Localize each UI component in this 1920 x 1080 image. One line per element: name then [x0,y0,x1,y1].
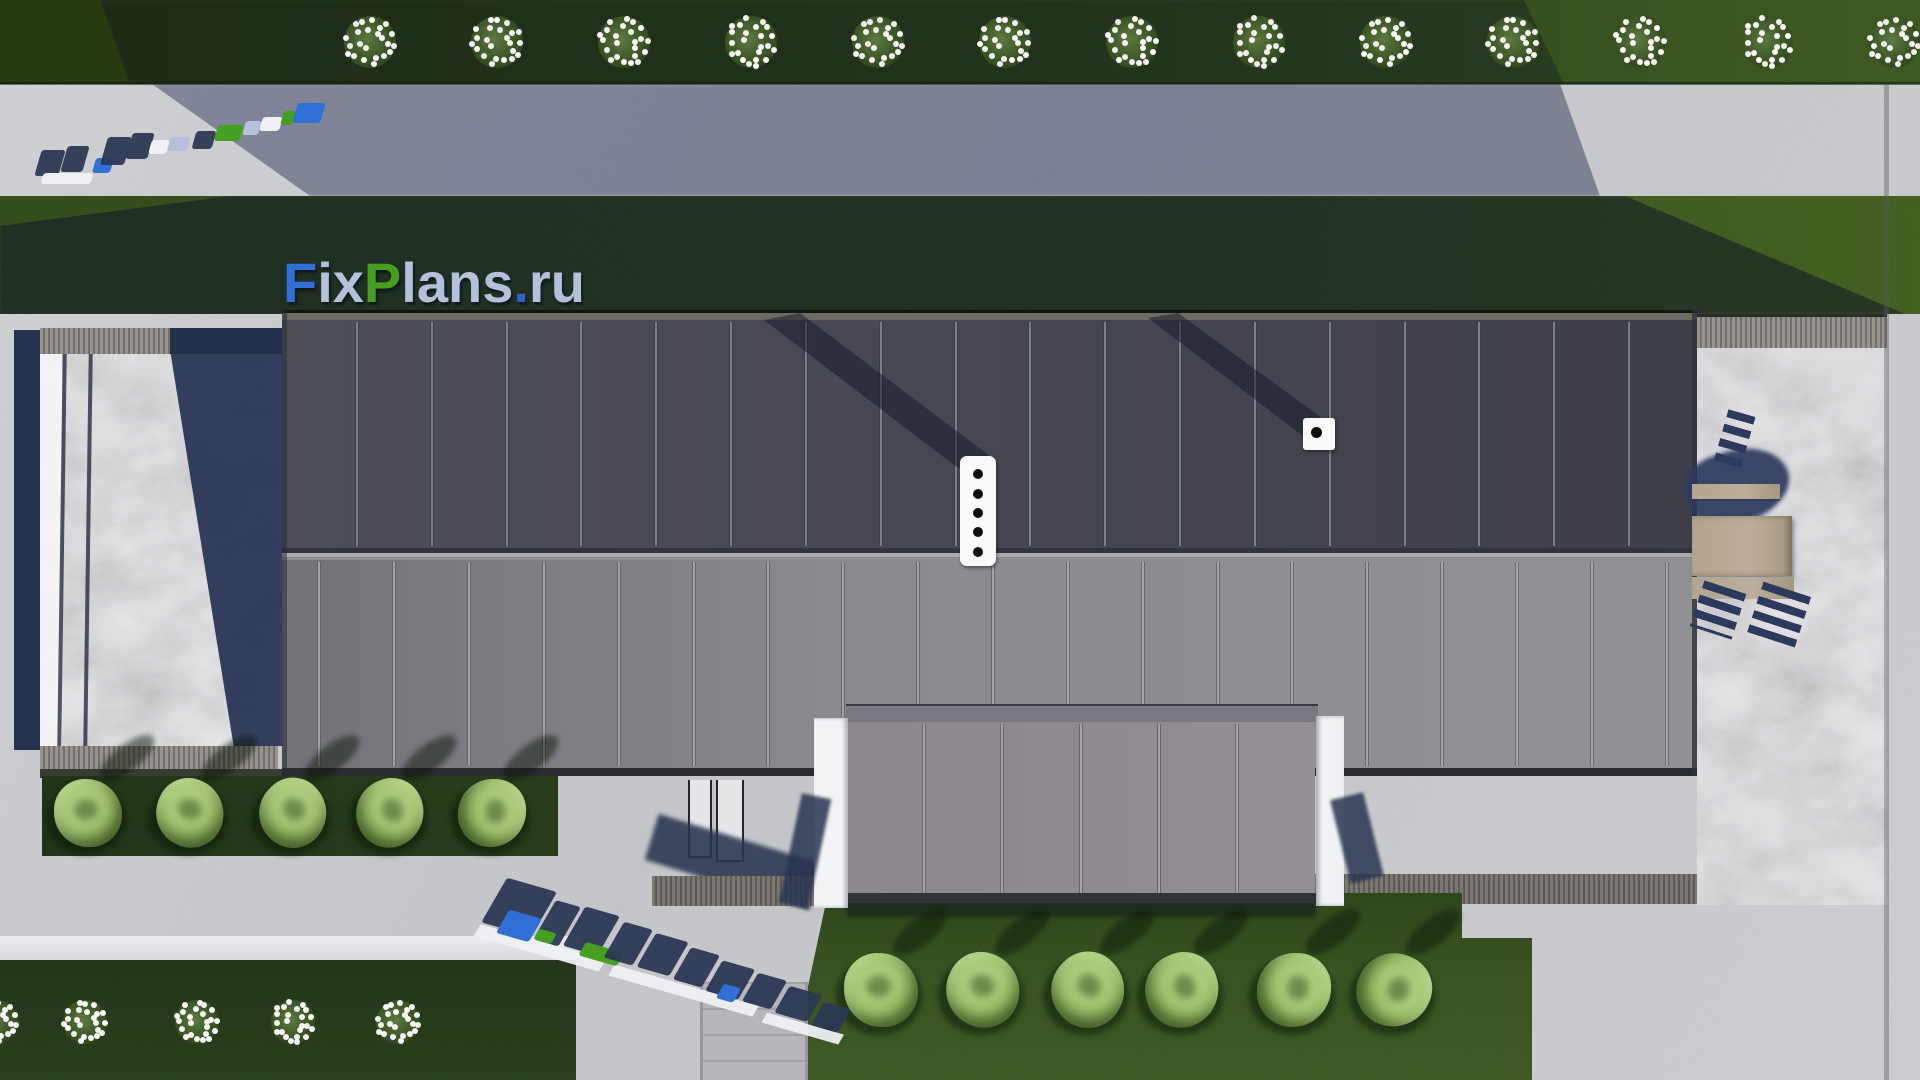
roof-seam [692,562,696,766]
tree-inner-shade [1286,975,1309,1001]
far-right-seam [1884,84,1889,1080]
wing-roof [846,722,1315,897]
tree-inner-shade [966,971,998,1001]
walkway-band-edge [0,82,1920,85]
chimney-vent-hole [973,547,983,557]
chimney-vent-hole [973,489,983,499]
bush-flowers [748,39,754,45]
bush-foliage [0,1000,18,1044]
bush-flowers [395,1019,401,1025]
watermark-fixplans: FixPlans.ru [283,250,683,310]
watermark-ground-block [214,125,245,141]
roof-seam [1590,562,1594,766]
tree-inner-shade [379,795,406,824]
bench-top [1692,484,1780,499]
flower-bush [1737,12,1797,72]
flower-bush [1864,12,1920,72]
roof-seam [922,724,926,895]
watermark-ground-block [40,173,93,184]
flower-bush [0,996,22,1048]
roof-seam [505,322,509,546]
bush-flowers [194,1019,200,1025]
roof-seam [1515,562,1519,766]
bush-flowers [1637,39,1643,45]
garden-table [1692,516,1792,576]
roof-seam [1403,322,1407,546]
watermark-letter-group: F [283,251,317,314]
tree-inner-shade [279,794,310,825]
watermark-ground-block [167,137,191,151]
roof-seam [317,562,321,766]
roof-seam [804,322,808,546]
watermark-letter-group: lans [401,251,513,314]
roof-seam [1253,322,1257,546]
watermark-letter-group: ru [529,251,585,314]
roof-seam [467,562,471,766]
roof-seam [392,562,396,766]
terrace-top-deck-band [40,328,170,354]
flower-bush [1483,12,1543,72]
watermark-ground-block [191,131,216,149]
bush-flowers [875,39,881,45]
roof-seam [1552,322,1556,546]
left-fence-shadow [14,330,40,750]
bush-flowers [1129,39,1135,45]
bush-flowers [1764,39,1770,45]
bush-flowers [367,39,373,45]
watermark-letter-group: P [364,251,401,314]
tree-inner-shade [1072,969,1105,1003]
terrace-top-band-shadowed [170,328,282,354]
watermark-letter-group: ix [317,251,364,314]
roof-seam [654,322,658,546]
tree [54,779,122,847]
roof-seam [1235,724,1239,895]
roof-seam [1665,562,1669,766]
watermark-ground-top-left [28,95,338,190]
flower-bush [340,12,400,72]
bush-flowers [1002,39,1008,45]
chimney-vent-hole [973,469,983,479]
tree-inner-shade [74,799,97,819]
watermark-ground-block [148,140,170,154]
flower-bush [1102,12,1162,72]
roof-seam [355,322,359,546]
flower-bush [267,996,319,1048]
bush-flowers [1510,39,1516,45]
chimney-vent-hole [973,527,983,537]
roof-seam [1079,724,1083,895]
roof-seam [1028,322,1032,546]
flower-bush [721,12,781,72]
wing-bottom-edge [846,893,1315,903]
flower-bush [467,12,527,72]
roof-seam [1103,322,1107,546]
roof-seam [1440,562,1444,766]
tree-inner-shade [175,795,204,823]
bush-flowers [290,1019,296,1025]
flower-bush [1229,12,1289,72]
tree-inner-shade [1170,971,1200,1002]
flower-bush [594,12,654,72]
bush-flowers [1256,39,1262,45]
tree-inner-shade [485,799,506,823]
roof-seam [879,322,883,546]
roof-seam [617,562,621,766]
roof-seam [1178,322,1182,546]
flower-bush [975,12,1035,72]
roof-seam [1477,322,1481,546]
roof-seam [1627,322,1631,546]
flower-bush [59,996,111,1048]
roof-seam [430,322,434,546]
watermark-ground-block [259,117,283,131]
roof-vent-hole [1311,427,1322,438]
roof-seam [766,562,770,766]
flower-bush [372,996,424,1048]
roof-seam [729,322,733,546]
site-render-canvas: FixPlans.ru [0,0,1920,1080]
roof-seam [579,322,583,546]
flower-bush [171,996,223,1048]
roof-seam [1000,724,1004,895]
patio-deck-band [1697,314,1887,348]
bush-flowers [494,39,500,45]
flower-bush [1356,12,1416,72]
watermark-letter-group: . [513,251,529,314]
roof-left-fascia [282,310,287,776]
bush-flowers [82,1019,88,1025]
flower-bush [1610,12,1670,72]
watermark-ground-block [292,103,326,123]
roof-seam [1157,724,1161,895]
roof-seam [1365,562,1369,766]
bush-flowers [621,39,627,45]
flower-bush [848,12,908,72]
bush-flowers [1383,39,1389,45]
bush-flowers [1891,39,1897,45]
tree-inner-shade [1383,973,1414,1005]
chimney-vent-hole [973,508,983,518]
wing-top-band [846,704,1318,722]
